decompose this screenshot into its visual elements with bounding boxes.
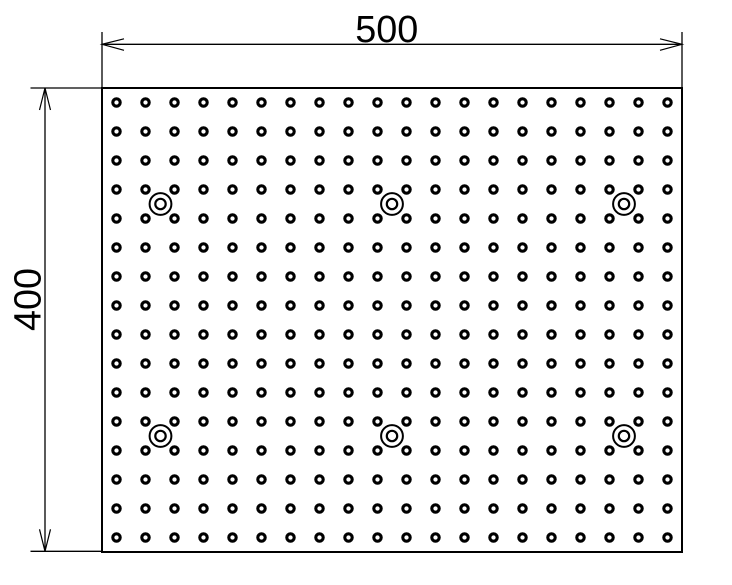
svg-text:400: 400	[8, 268, 50, 331]
svg-text:500: 500	[355, 9, 418, 51]
